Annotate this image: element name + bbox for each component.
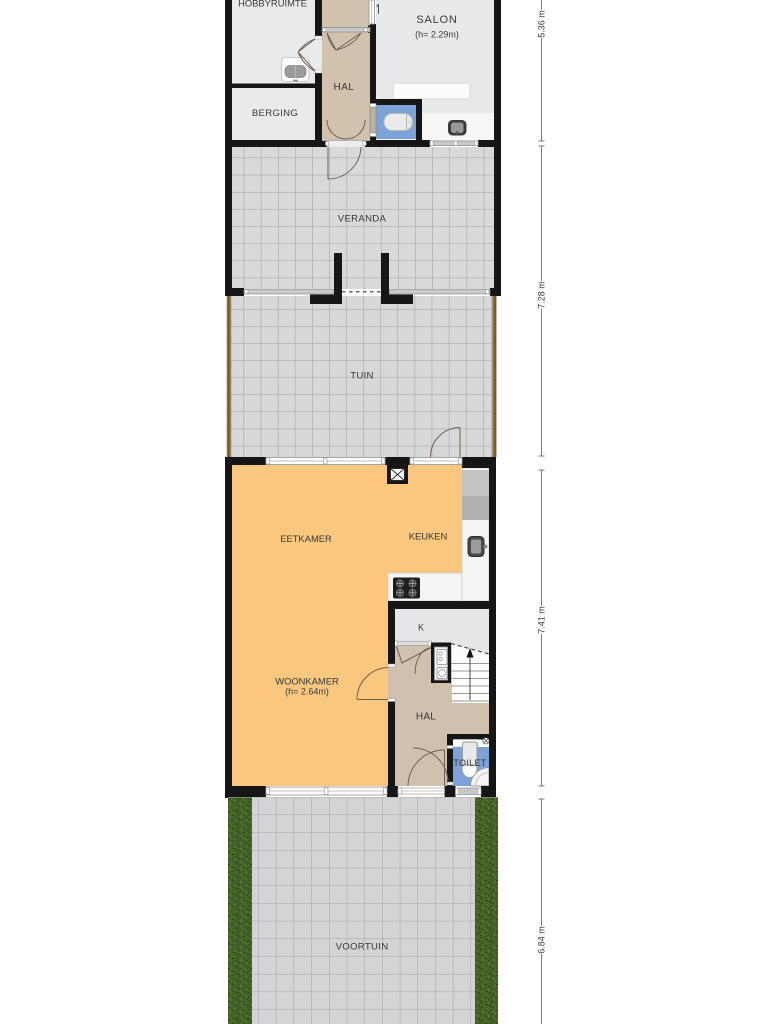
svg-text:(h= 2.64m): (h= 2.64m) <box>285 687 329 697</box>
svg-text:VOORTUIN: VOORTUIN <box>336 942 389 953</box>
svg-text:SALON: SALON <box>416 14 457 26</box>
svg-text:7.41 m: 7.41 m <box>537 606 547 634</box>
svg-text:KEUKEN: KEUKEN <box>409 531 448 542</box>
svg-text:5.36 m: 5.36 m <box>537 10 547 38</box>
svg-text:(h= 2.29m): (h= 2.29m) <box>415 30 459 40</box>
svg-text:K: K <box>418 623 424 633</box>
svg-text:EETKAMER: EETKAMER <box>280 533 332 544</box>
svg-text:6.84 m: 6.84 m <box>537 926 547 954</box>
svg-text:HAL: HAL <box>416 712 436 723</box>
svg-text:BERGING: BERGING <box>252 108 298 119</box>
svg-text:VERANDA: VERANDA <box>338 214 387 225</box>
svg-text:TOILET: TOILET <box>453 758 486 768</box>
svg-text:HAL: HAL <box>334 82 355 93</box>
svg-text:HOBBYRUIMTE: HOBBYRUIMTE <box>238 0 307 9</box>
svg-text:7.28 m: 7.28 m <box>537 281 547 309</box>
svg-text:WOONKAMER: WOONKAMER <box>275 676 339 687</box>
svg-text:TUIN: TUIN <box>350 371 374 382</box>
